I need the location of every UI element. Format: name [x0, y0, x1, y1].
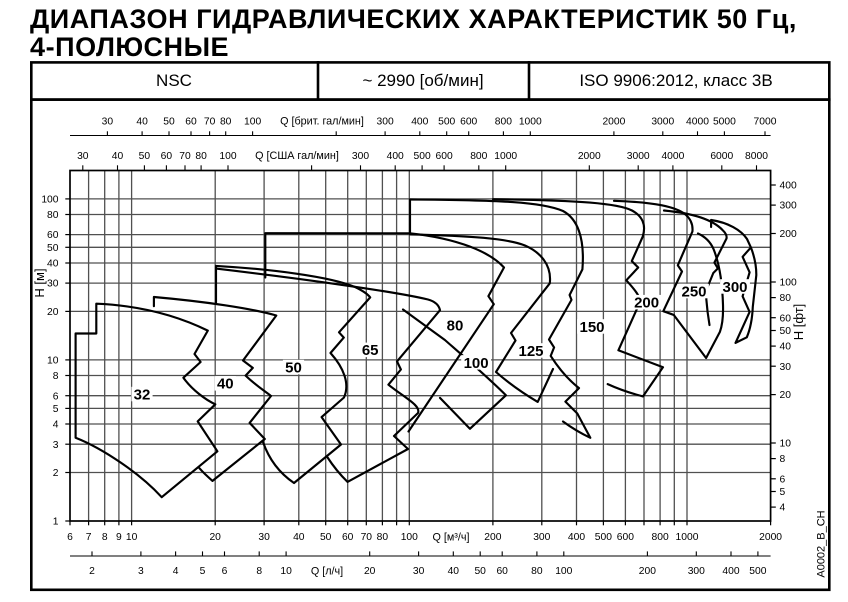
- svg-text:30: 30: [102, 117, 114, 128]
- svg-text:5: 5: [780, 487, 786, 498]
- svg-text:400: 400: [568, 532, 585, 543]
- svg-text:10: 10: [780, 439, 792, 450]
- svg-text:50: 50: [474, 566, 486, 577]
- svg-text:NSC: NSC: [156, 71, 192, 90]
- svg-text:3: 3: [138, 566, 144, 577]
- svg-text:60: 60: [780, 313, 792, 324]
- svg-text:400: 400: [411, 117, 428, 128]
- svg-text:8: 8: [780, 454, 786, 465]
- svg-text:125: 125: [518, 343, 543, 360]
- svg-text:4: 4: [173, 566, 179, 577]
- svg-text:5: 5: [53, 404, 59, 415]
- svg-text:Q [м³/ч]: Q [м³/ч]: [432, 532, 469, 544]
- svg-text:40: 40: [293, 532, 305, 543]
- svg-text:500: 500: [595, 532, 612, 543]
- svg-text:100: 100: [41, 195, 58, 206]
- svg-text:400: 400: [780, 181, 797, 192]
- svg-text:50: 50: [780, 326, 792, 337]
- svg-text:50: 50: [163, 117, 175, 128]
- svg-text:4000: 4000: [686, 117, 709, 128]
- svg-text:500: 500: [438, 117, 455, 128]
- svg-text:2000: 2000: [602, 117, 625, 128]
- svg-text:1: 1: [53, 517, 59, 528]
- svg-text:600: 600: [617, 532, 634, 543]
- svg-text:8: 8: [53, 371, 59, 382]
- svg-text:8000: 8000: [745, 151, 768, 162]
- svg-text:50: 50: [47, 243, 59, 254]
- svg-text:200: 200: [780, 229, 797, 240]
- svg-text:H [фт]: H [фт]: [791, 304, 806, 341]
- svg-text:70: 70: [361, 532, 373, 543]
- svg-text:6000: 6000: [710, 151, 733, 162]
- svg-text:40: 40: [112, 151, 124, 162]
- svg-text:100: 100: [244, 117, 261, 128]
- svg-text:10: 10: [280, 566, 292, 577]
- svg-text:6: 6: [53, 391, 59, 402]
- svg-text:1000: 1000: [519, 117, 542, 128]
- svg-text:300: 300: [688, 566, 705, 577]
- svg-text:65: 65: [362, 342, 379, 359]
- svg-text:600: 600: [436, 151, 453, 162]
- svg-text:10: 10: [126, 532, 138, 543]
- svg-text:80: 80: [195, 151, 207, 162]
- svg-text:2: 2: [53, 468, 59, 479]
- svg-text:20: 20: [209, 532, 221, 543]
- svg-text:80: 80: [531, 566, 543, 577]
- svg-text:6: 6: [67, 532, 73, 543]
- svg-text:30: 30: [47, 279, 59, 290]
- svg-text:60: 60: [496, 566, 508, 577]
- svg-text:60: 60: [161, 151, 173, 162]
- svg-text:60: 60: [342, 532, 354, 543]
- svg-text:800: 800: [470, 151, 487, 162]
- svg-text:7: 7: [86, 532, 92, 543]
- svg-text:80: 80: [447, 318, 464, 335]
- svg-text:200: 200: [484, 532, 501, 543]
- svg-text:4000: 4000: [661, 151, 684, 162]
- svg-text:6: 6: [222, 566, 228, 577]
- svg-text:50: 50: [139, 151, 151, 162]
- svg-text:~ 2990 [об/мин]: ~ 2990 [об/мин]: [362, 71, 483, 90]
- svg-text:7000: 7000: [754, 117, 777, 128]
- svg-text:ISO 9906:2012, класс 3В: ISO 9906:2012, класс 3В: [579, 71, 772, 90]
- svg-text:80: 80: [377, 532, 389, 543]
- svg-text:80: 80: [47, 210, 59, 221]
- svg-text:500: 500: [414, 151, 431, 162]
- svg-text:40: 40: [217, 376, 234, 393]
- svg-text:300: 300: [533, 532, 550, 543]
- svg-text:300: 300: [377, 117, 394, 128]
- svg-text:1000: 1000: [676, 532, 699, 543]
- svg-text:800: 800: [652, 532, 669, 543]
- svg-text:40: 40: [780, 342, 792, 353]
- svg-text:9: 9: [116, 532, 122, 543]
- svg-text:1000: 1000: [494, 151, 517, 162]
- svg-text:100: 100: [555, 566, 572, 577]
- svg-text:20: 20: [780, 390, 792, 401]
- svg-text:5000: 5000: [713, 117, 736, 128]
- svg-text:20: 20: [364, 566, 376, 577]
- svg-text:300: 300: [722, 279, 747, 296]
- svg-text:H [м]: H [м]: [32, 268, 47, 297]
- svg-text:10: 10: [47, 356, 59, 367]
- svg-text:Q [брит. гал/мин]: Q [брит. гал/мин]: [280, 116, 364, 128]
- svg-text:Q [л/ч]: Q [л/ч]: [311, 566, 343, 578]
- svg-text:600: 600: [460, 117, 477, 128]
- svg-text:200: 200: [634, 295, 659, 312]
- svg-text:60: 60: [47, 230, 59, 241]
- svg-text:80: 80: [220, 117, 232, 128]
- svg-text:200: 200: [639, 566, 656, 577]
- svg-text:2: 2: [89, 566, 95, 577]
- svg-text:40: 40: [448, 566, 460, 577]
- svg-text:6: 6: [780, 474, 786, 485]
- svg-text:30: 30: [77, 151, 89, 162]
- svg-text:30: 30: [413, 566, 425, 577]
- svg-text:32: 32: [134, 386, 151, 403]
- svg-text:100: 100: [464, 355, 489, 372]
- svg-text:300: 300: [352, 151, 369, 162]
- svg-text:20: 20: [47, 307, 59, 318]
- svg-text:150: 150: [579, 319, 604, 336]
- svg-text:80: 80: [780, 293, 792, 304]
- svg-text:2000: 2000: [759, 532, 782, 543]
- svg-text:8: 8: [102, 532, 108, 543]
- svg-text:Q [США гал/мин]: Q [США гал/мин]: [255, 150, 339, 162]
- svg-text:40: 40: [47, 259, 59, 270]
- svg-text:300: 300: [780, 201, 797, 212]
- svg-text:400: 400: [722, 566, 739, 577]
- svg-text:100: 100: [780, 278, 797, 289]
- svg-text:70: 70: [179, 151, 191, 162]
- svg-text:3: 3: [53, 440, 59, 451]
- svg-text:3000: 3000: [627, 151, 650, 162]
- svg-text:30: 30: [780, 362, 792, 373]
- svg-text:400: 400: [387, 151, 404, 162]
- svg-text:3000: 3000: [651, 117, 674, 128]
- svg-text:800: 800: [495, 117, 512, 128]
- svg-text:4: 4: [53, 420, 59, 431]
- svg-text:2000: 2000: [578, 151, 601, 162]
- svg-text:30: 30: [258, 532, 270, 543]
- svg-text:50: 50: [285, 359, 302, 376]
- svg-text:60: 60: [185, 117, 197, 128]
- svg-text:50: 50: [320, 532, 332, 543]
- svg-text:A0002_B_CH: A0002_B_CH: [816, 510, 828, 577]
- svg-text:100: 100: [401, 532, 418, 543]
- svg-text:4: 4: [780, 503, 786, 514]
- svg-text:40: 40: [136, 117, 148, 128]
- svg-text:250: 250: [681, 283, 706, 300]
- svg-text:100: 100: [219, 151, 236, 162]
- svg-text:500: 500: [749, 566, 766, 577]
- svg-text:8: 8: [256, 566, 262, 577]
- svg-text:70: 70: [204, 117, 216, 128]
- svg-text:5: 5: [200, 566, 206, 577]
